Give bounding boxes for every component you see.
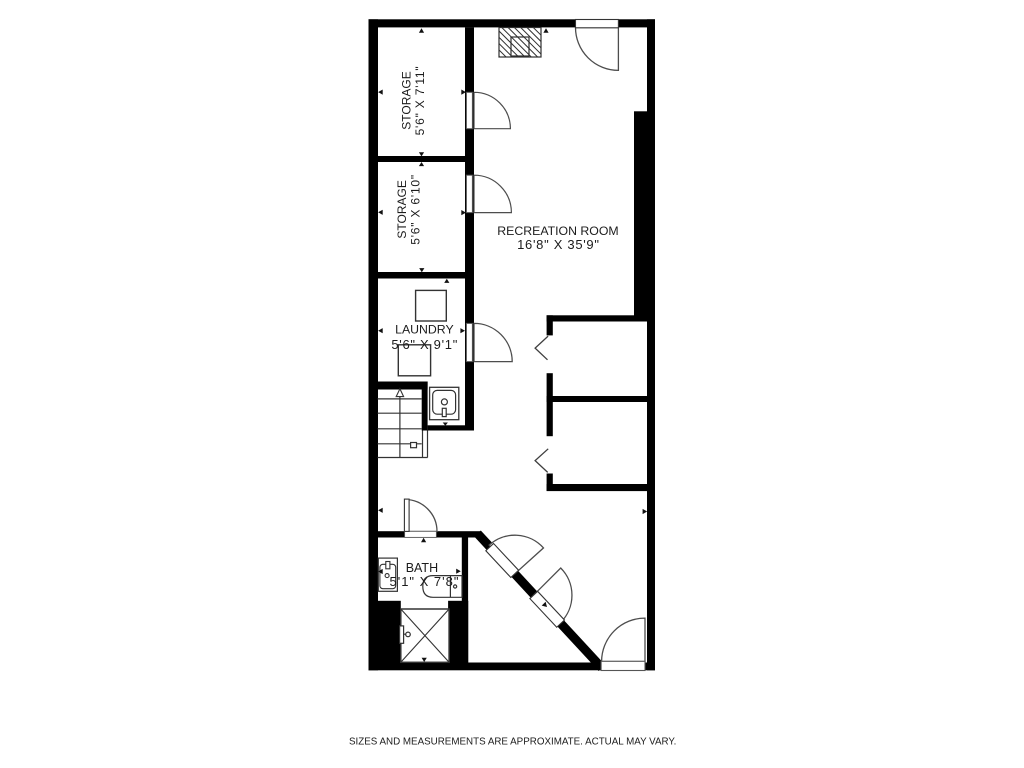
svg-text:SIZES AND MEASUREMENTS ARE APP: SIZES AND MEASUREMENTS ARE APPROXIMATE. …	[349, 737, 676, 748]
svg-text:5'1" X 7'8": 5'1" X 7'8"	[389, 574, 459, 589]
svg-text:5'6" X 6'10": 5'6" X 6'10"	[409, 174, 423, 245]
svg-text:STORAGE: STORAGE	[395, 180, 409, 238]
svg-text:LAUNDRY: LAUNDRY	[395, 322, 454, 336]
svg-text:16'8" X 35'9": 16'8" X 35'9"	[517, 237, 600, 252]
svg-text:BATH: BATH	[406, 561, 438, 575]
svg-text:STORAGE: STORAGE	[400, 71, 414, 129]
svg-text:5'6" X 7'11": 5'6" X 7'11"	[413, 66, 427, 136]
svg-text:5'6" X 9'1": 5'6" X 9'1"	[391, 337, 458, 352]
